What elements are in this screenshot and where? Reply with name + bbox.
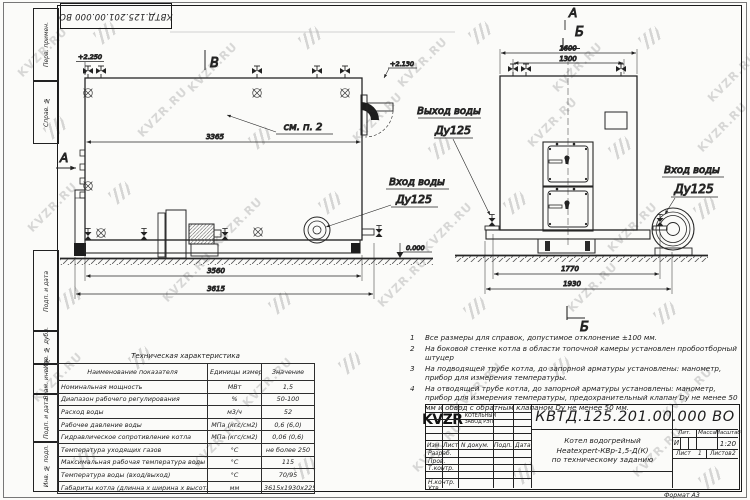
dim-1600: 1600 bbox=[559, 45, 576, 53]
valve-icon bbox=[521, 64, 531, 76]
tech-table-cell: Номинальная мощность bbox=[58, 381, 208, 394]
product-name: Котел водогрейный Heatexpert-КВр-1,5-Д(К… bbox=[532, 430, 673, 471]
note-item: 1Все размеры для справок, допустимое отк… bbox=[410, 333, 744, 343]
tech-table-cell: Гидравлическое сопротивление котла bbox=[58, 431, 208, 444]
note-item: 3На подводящей трубе котла, до запорной … bbox=[410, 364, 744, 383]
dim-1930: 1930 bbox=[563, 280, 581, 288]
outlet-dn-label: Ду125 bbox=[434, 124, 471, 137]
dim-3365: 3365 bbox=[206, 133, 224, 141]
sheet-label: Лист bbox=[676, 451, 691, 457]
vent-icon bbox=[336, 84, 354, 102]
tech-table-cell: 1,5 bbox=[262, 381, 315, 394]
tech-table-cell: 52 bbox=[262, 406, 315, 419]
stamp-doc-number: КВТД.125.201.00.000 ВО bbox=[532, 405, 738, 429]
tech-table-cell: °С bbox=[208, 443, 262, 456]
tech-table-row: Диапазон рабочего регулирования%50-100 bbox=[58, 393, 315, 406]
tech-table-header: Значение bbox=[262, 364, 315, 381]
inlet-water-label: Вход воды bbox=[664, 165, 720, 176]
section-label-a-top: А bbox=[568, 6, 577, 20]
format-label: Формат А3 bbox=[664, 492, 700, 499]
tech-table-row: Расход водым3/ч52 bbox=[58, 406, 315, 419]
vent-icon bbox=[249, 223, 267, 241]
see-note-label: см. п. 2 bbox=[284, 122, 323, 133]
tech-table-row: Температура уходящих газов°Сне более 250 bbox=[58, 443, 315, 456]
tech-table-cell: не более 250 bbox=[262, 443, 315, 456]
tech-table-row: Гидравлическое сопротивление котлаМПа (к… bbox=[58, 431, 315, 444]
tech-table-cell: Диапазон рабочего регулирования bbox=[58, 393, 208, 406]
inlet-dn-label: Ду125 bbox=[673, 182, 713, 196]
valve-icon bbox=[616, 64, 626, 76]
tech-table-cell: мм bbox=[208, 481, 262, 494]
product-name-line3: по техническому заданию bbox=[552, 455, 653, 465]
tech-table: Наименование показателя Единицы измерени… bbox=[57, 363, 315, 494]
sheets-value: 2 bbox=[732, 451, 736, 457]
tech-table-cell: Габариты котла (длинна х ширина х высота… bbox=[58, 481, 208, 494]
vent-icon bbox=[92, 224, 110, 242]
note-number: 1 bbox=[410, 333, 425, 343]
inlet-fan-scroll bbox=[652, 208, 694, 250]
valve-icon bbox=[312, 66, 322, 78]
dim-3560: 3560 bbox=[207, 267, 225, 275]
elevation-zero: 0.000 bbox=[406, 244, 425, 252]
tech-table-cell: МПа (кгс/см2) bbox=[208, 431, 262, 444]
tech-table-header-row: Наименование показателя Единицы измерени… bbox=[58, 364, 315, 381]
product-name-line2: Heatexpert-КВр-1,5-Д(К) bbox=[557, 446, 649, 456]
skid-frame bbox=[85, 240, 360, 253]
title-block: Изм Лист N докум. Подп. Дата Разраб. Про… bbox=[425, 404, 740, 490]
vent-icon bbox=[79, 84, 97, 102]
row-tkontr: Т.контр. bbox=[428, 465, 454, 472]
sheets-label: Листов bbox=[710, 451, 732, 457]
tech-table-cell: Температура воды (вход/выход) bbox=[58, 469, 208, 482]
view-label-v: В bbox=[210, 56, 219, 71]
valve-icon bbox=[141, 229, 148, 241]
lit-value: И bbox=[673, 437, 680, 449]
note-number: 2 bbox=[410, 344, 425, 363]
product-name-line1: Котел водогрейный bbox=[564, 436, 641, 446]
tech-table-cell: % bbox=[208, 393, 262, 406]
tech-table-cell: 3615х1930х2250 bbox=[262, 481, 315, 494]
tech-table-row: Габариты котла (длинна х ширина х высота… bbox=[58, 481, 315, 494]
row-razrab: Разраб. bbox=[428, 450, 452, 457]
tech-table-cell: °С bbox=[208, 469, 262, 482]
rev-col-ndoc: N докум. bbox=[461, 442, 489, 449]
front-view: А Б 1600 1300 bbox=[417, 6, 724, 335]
vent-icon bbox=[248, 84, 266, 102]
note-item: 2На боковой стенке котла в области топоч… bbox=[410, 344, 744, 363]
sheet-value: 1 bbox=[698, 451, 702, 457]
tech-table-cell: 50-100 bbox=[262, 393, 315, 406]
tech-table-row: Рабочее давление водыМПа (кгс/см2)0,6 (6… bbox=[58, 418, 315, 431]
tech-table-header: Единицы измерения bbox=[208, 364, 262, 381]
tech-table-row: Номинальная мощностьМВт1,5 bbox=[58, 381, 315, 394]
valve-icon bbox=[83, 66, 93, 78]
tech-table-row: Температура воды (вход/выход)°С70/95 bbox=[58, 469, 315, 482]
mass-header: Масса bbox=[697, 429, 717, 437]
note-number: 4 bbox=[410, 384, 425, 413]
tech-table-cell: м3/ч bbox=[208, 406, 262, 419]
motor bbox=[189, 224, 214, 244]
section-label-b-top: Б bbox=[575, 25, 584, 40]
rev-col-data: Дата bbox=[515, 442, 531, 449]
section-label-a: А bbox=[59, 151, 68, 165]
drawing-sheet: KVZR.RUKVZR.RUKVZR.RUKVZR.RUKVZR.RUKVZR.… bbox=[0, 0, 750, 500]
dim-1300: 1300 bbox=[559, 55, 576, 63]
valve-icon bbox=[222, 229, 229, 241]
rev-col-list: Лист bbox=[443, 442, 458, 449]
side-view: 3365 +2.250 В +2.130 bbox=[56, 50, 449, 299]
dim-1770: 1770 bbox=[561, 265, 579, 273]
lit-header: Лит. bbox=[673, 429, 696, 437]
tech-table-title: Техническая характеристика bbox=[57, 352, 314, 360]
tech-table-cell: °С bbox=[208, 456, 262, 469]
outlet-water-label: Выход воды bbox=[417, 106, 481, 117]
burner-bracket bbox=[166, 210, 186, 258]
tech-table-row: Максимальная рабочая температура воды°С1… bbox=[58, 456, 315, 469]
elevation-label: +2.250 bbox=[78, 53, 102, 61]
inspection-panel bbox=[605, 112, 627, 129]
tech-table-cell: МВт bbox=[208, 381, 262, 394]
valve-icon bbox=[96, 66, 106, 78]
inlet-dn-label: Ду125 bbox=[395, 193, 432, 206]
scale-value: 1:20 bbox=[718, 437, 738, 449]
tech-table-cell: 115 bbox=[262, 456, 315, 469]
tech-table-cell: Температура уходящих газов bbox=[58, 443, 208, 456]
elevation-label: +2.130 bbox=[390, 60, 414, 68]
valve-icon bbox=[340, 66, 350, 78]
note-text: На боковой стенке котла в области топочн… bbox=[425, 344, 744, 363]
valve-icon bbox=[489, 215, 496, 227]
scale-header: Масштаб bbox=[718, 429, 738, 437]
valve-icon bbox=[252, 66, 262, 78]
rev-col-podp: Подп. bbox=[494, 442, 512, 449]
tech-table-header: Наименование показателя bbox=[58, 364, 208, 381]
valve-icon bbox=[376, 226, 383, 238]
tech-table-cell: Расход воды bbox=[58, 406, 208, 419]
tech-table-cell: 0,6 (6,0) bbox=[262, 418, 315, 431]
tech-table-cell: 0,06 (0,6) bbox=[262, 431, 315, 444]
notes-list: 1Все размеры для справок, допустимое отк… bbox=[410, 333, 744, 413]
note-text: На подводящей трубе котла, до запорной а… bbox=[425, 364, 744, 383]
inlet-water-label: Вход воды bbox=[389, 177, 445, 188]
boiler-body-side bbox=[85, 78, 362, 240]
row-utv: Утв. bbox=[428, 485, 441, 492]
note-text: Все размеры для справок, допустимое откл… bbox=[425, 333, 744, 343]
rev-col-izm: Изм bbox=[427, 442, 439, 449]
tech-table-cell: Максимальная рабочая температура воды bbox=[58, 456, 208, 469]
tech-table-cell: 70/95 bbox=[262, 469, 315, 482]
note-number: 3 bbox=[410, 364, 425, 383]
tech-table-cell: МПа (кгс/см2) bbox=[208, 418, 262, 431]
dim-3615: 3615 bbox=[207, 285, 225, 293]
tech-table-cell: Рабочее давление воды bbox=[58, 418, 208, 431]
